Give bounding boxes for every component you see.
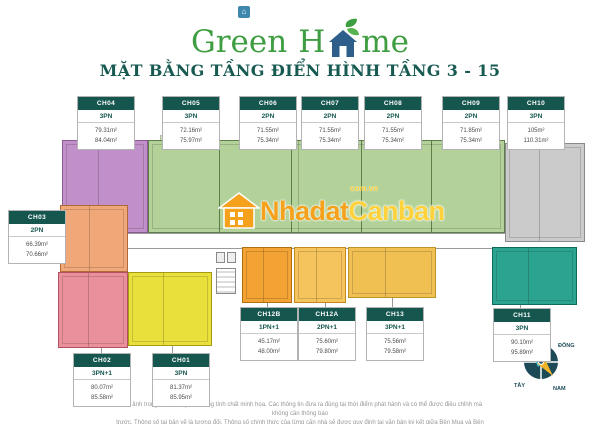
unit-type: 2PN+1 — [299, 321, 355, 334]
unit-type: 3PN — [494, 322, 550, 335]
unit-area-net: 71.55m² — [365, 126, 421, 136]
unit-id: CH10 — [508, 97, 564, 110]
unit-label-ch08: CH08 2PN 71.55m²75.34m² — [364, 96, 422, 150]
unit-plan-ch12b — [242, 247, 292, 303]
watermark: Nhadat Canban com.vn — [218, 192, 445, 230]
unit-area-gross: 79.80m² — [299, 347, 355, 357]
unit-area-net: 75.56m² — [367, 337, 423, 347]
unit-area-gross: 110.31m² — [508, 136, 564, 146]
unit-id: CH12B — [241, 308, 297, 321]
unit-id: CH08 — [365, 97, 421, 110]
logo-text-h: H — [298, 27, 325, 58]
unit-area-net: 66.39m² — [9, 240, 65, 250]
unit-area-gross: 75.34m² — [302, 136, 358, 146]
unit-id: CH12A — [299, 308, 355, 321]
unit-area-net: 71.85m² — [443, 126, 499, 136]
unit-area-gross: 75.34m² — [240, 136, 296, 146]
logo-house-leaf-icon — [326, 18, 360, 58]
unit-type: 3PN — [163, 110, 219, 123]
elevator-icon — [216, 252, 225, 263]
unit-id: CH01 — [153, 354, 209, 367]
compass-west-label: TÂY — [514, 382, 525, 389]
unit-area-gross: 70.66m² — [9, 250, 65, 260]
unit-area-gross: 75.34m² — [443, 136, 499, 146]
unit-area-net: 71.55m² — [302, 126, 358, 136]
unit-area-gross: 75.34m² — [365, 136, 421, 146]
unit-id: CH13 — [367, 308, 423, 321]
unit-type: 2PN — [240, 110, 296, 123]
unit-id: CH05 — [163, 97, 219, 110]
unit-plan-ch10 — [505, 143, 585, 242]
compass-south-label: NAM — [553, 386, 566, 392]
unit-area-net: 80.07m² — [74, 383, 130, 393]
unit-type: 3PN+1 — [367, 321, 423, 334]
unit-label-ch11: CH11 3PN 90.10m²95.89m² — [493, 308, 551, 362]
unit-label-ch05: CH05 3PN 72.16m²75.97m² — [162, 96, 220, 150]
unit-type: 3PN — [508, 110, 564, 123]
unit-label-ch12a: CH12A 2PN+1 75.60m²79.80m² — [298, 307, 356, 361]
unit-plan-ch11 — [492, 247, 577, 305]
unit-type: 2PN — [9, 224, 65, 237]
watermark-text-1: Nhadat — [260, 198, 349, 225]
page-title: MẶT BẰNG TẦNG ĐIỂN HÌNH TẦNG 3 - 15 — [0, 61, 600, 80]
disclaimer-line-2: trước. Thông số tại bản vẽ là tương đối.… — [110, 419, 490, 424]
compass-east-label: ĐÔNG — [558, 341, 575, 349]
unit-area-net: 81.37m² — [153, 383, 209, 393]
unit-id: CH03 — [9, 211, 65, 224]
unit-area-net: 71.55m² — [240, 126, 296, 136]
logo-text-green: Green — [191, 27, 287, 58]
logo-badge-house-icon: ⌂ — [238, 6, 250, 18]
floorplan-poster: Green H me ⌂ MẶT BẰNG TẦNG ĐIỂN HÌNH TẦN… — [0, 0, 600, 424]
unit-type: 2PN — [443, 110, 499, 123]
unit-area-gross: 85.95m² — [153, 393, 209, 403]
watermark-text-2: Canban — [349, 198, 445, 225]
logo-text-me: me — [361, 27, 409, 58]
unit-label-ch03: CH03 2PN 66.39m²70.66m² — [8, 210, 66, 264]
unit-label-ch10: CH10 3PN 105m²110.31m² — [507, 96, 565, 150]
watermark-domain: com.vn — [350, 184, 378, 193]
label-connector — [172, 346, 173, 353]
unit-id: CH04 — [78, 97, 134, 110]
unit-type: 2PN — [365, 110, 421, 123]
unit-area-gross: 85.58m² — [74, 393, 130, 403]
unit-plan-ch12a — [294, 247, 346, 303]
unit-type: 1PN+1 — [241, 321, 297, 334]
unit-area-net: 90.10m² — [494, 338, 550, 348]
unit-label-ch09: CH09 2PN 71.85m²75.34m² — [442, 96, 500, 150]
unit-area-net: 75.60m² — [299, 337, 355, 347]
unit-label-ch07: CH07 2PN 71.55m²75.34m² — [301, 96, 359, 150]
unit-type: 3PN — [153, 367, 209, 380]
elevator-icon — [227, 252, 236, 263]
unit-plan-ch13 — [348, 247, 436, 298]
unit-plan-ch03 — [60, 205, 128, 272]
unit-area-gross: 84.04m² — [78, 136, 134, 146]
unit-area-gross: 95.89m² — [494, 348, 550, 358]
unit-id: CH09 — [443, 97, 499, 110]
unit-area-gross: 75.97m² — [163, 136, 219, 146]
unit-label-ch01: CH01 3PN 81.37m²85.95m² — [152, 353, 210, 407]
unit-label-ch12b: CH12B 1PN+1 45.17m²48.00m² — [240, 307, 298, 361]
unit-type: 2PN — [302, 110, 358, 123]
unit-type: 3PN — [78, 110, 134, 123]
unit-id: CH11 — [494, 309, 550, 322]
unit-label-ch13: CH13 3PN+1 75.56m²79.58m² — [366, 307, 424, 361]
unit-area-net: 45.17m² — [241, 337, 297, 347]
label-connector — [392, 298, 393, 307]
unit-plan-ch01 — [128, 272, 212, 346]
unit-type: 3PN+1 — [74, 367, 130, 380]
stairs-icon — [216, 268, 236, 294]
unit-id: CH06 — [240, 97, 296, 110]
unit-area-gross: 48.00m² — [241, 347, 297, 357]
unit-label-ch04: CH04 3PN 79.31m²84.04m² — [77, 96, 135, 150]
unit-area-net: 72.16m² — [163, 126, 219, 136]
unit-label-ch02: CH02 3PN+1 80.07m²85.58m² — [73, 353, 131, 407]
unit-id: CH07 — [302, 97, 358, 110]
unit-area-gross: 79.58m² — [367, 347, 423, 357]
unit-id: CH02 — [74, 354, 130, 367]
watermark-house-icon — [218, 192, 260, 230]
unit-area-net: 79.31m² — [78, 126, 134, 136]
unit-area-net: 105m² — [508, 126, 564, 136]
logo: Green H me — [0, 6, 600, 58]
unit-label-ch06: CH06 2PN 71.55m²75.34m² — [239, 96, 297, 150]
unit-plan-ch02 — [58, 272, 128, 348]
